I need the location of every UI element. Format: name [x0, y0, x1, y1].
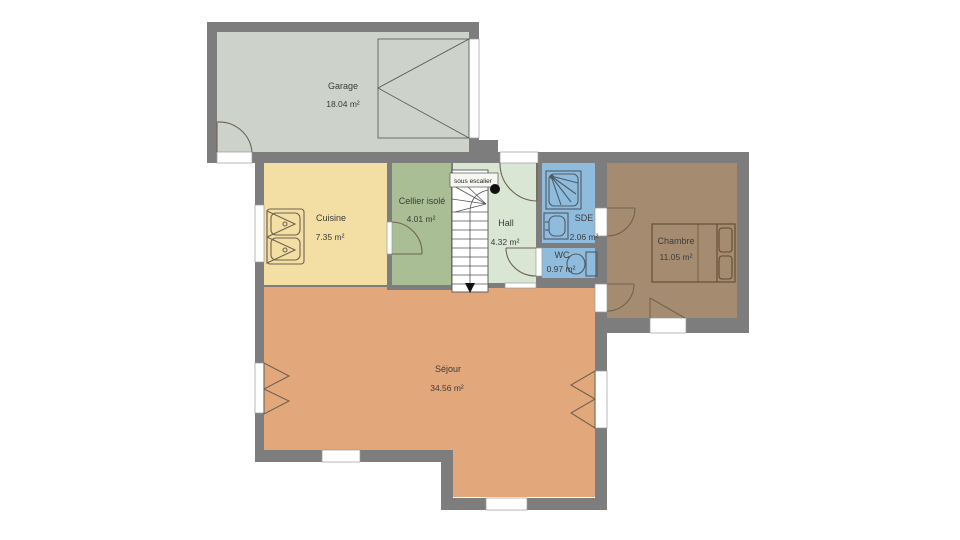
sejour-right-window [595, 371, 607, 428]
chambre-left-door-opening [595, 284, 607, 312]
cuisine-window [255, 205, 264, 262]
room-label-sde: SDE [575, 213, 594, 223]
garage-door-opening [469, 39, 479, 138]
sejour-bottom-left-window [322, 450, 360, 462]
door-stop-dot [490, 184, 500, 194]
room-label-chambre: Chambre [657, 236, 694, 246]
entrance-door-opening [500, 152, 538, 163]
room-area-chambre: 11.05 m² [660, 252, 693, 262]
room-label-sejour: Séjour [435, 364, 461, 374]
floor-plan: sous escalier [0, 0, 960, 540]
room-garage-floor [210, 25, 476, 159]
room-label-wc: WC [555, 250, 570, 260]
cellier-door-opening [387, 222, 392, 254]
sejour-bottom-right-window [486, 498, 527, 510]
floor-plan-page: sous escalier [0, 0, 960, 540]
room-area-hall: 4.32 m² [491, 237, 520, 247]
chambre-door-opening [650, 318, 686, 333]
room-area-garage: 18.04 m² [326, 99, 360, 109]
room-area-cuisine: 7.35 m² [316, 232, 345, 242]
wc-door-opening [536, 248, 542, 276]
sejour-left-window [255, 363, 264, 413]
stairs-note-label: sous escalier [454, 178, 493, 185]
room-area-wc: 0.97 m² [547, 264, 576, 274]
room-area-cellier: 4.01 m² [407, 214, 436, 224]
garage-side-door-opening [217, 152, 252, 163]
room-label-hall: Hall [498, 218, 514, 228]
room-label-cellier: Cellier isolé [399, 196, 446, 206]
room-area-sejour: 34.56 m² [430, 383, 464, 393]
room-label-cuisine: Cuisine [316, 213, 346, 223]
room-area-sde: 2.06 m² [570, 232, 599, 242]
hall-sejour-opening [505, 283, 536, 288]
room-label-garage: Garage [328, 81, 358, 91]
